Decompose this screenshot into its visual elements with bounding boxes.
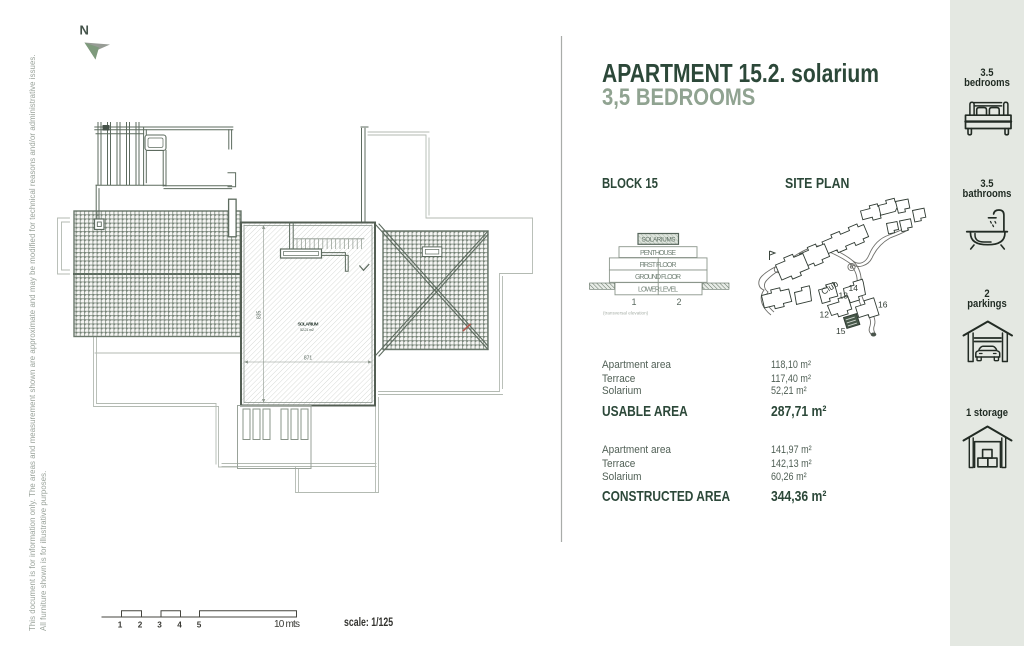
svg-text:4: 4 (177, 621, 182, 630)
svg-text:12: 12 (820, 310, 830, 320)
svg-text:N: N (80, 23, 89, 38)
svg-text:10 mts: 10 mts (274, 619, 300, 630)
svg-text:14: 14 (849, 283, 859, 293)
svg-text:SOLARIUMS: SOLARIUMS (642, 237, 676, 244)
svg-text:GROUND FLOOR: GROUND FLOOR (635, 274, 681, 281)
svg-text:2: 2 (138, 621, 143, 630)
svg-text:3: 3 (157, 621, 162, 630)
svg-text:(transversal elevation): (transversal elevation) (603, 311, 649, 316)
svg-text:13: 13 (839, 291, 849, 301)
svg-text:2: 2 (676, 297, 681, 307)
svg-text:16: 16 (878, 300, 888, 310)
svg-text:1: 1 (631, 297, 636, 307)
svg-text:835: 835 (257, 310, 263, 319)
svg-text:15: 15 (836, 326, 846, 336)
svg-text:1: 1 (118, 621, 123, 630)
svg-text:5: 5 (197, 621, 202, 630)
svg-text:PENTHOUSE: PENTHOUSE (640, 250, 676, 257)
svg-text:871: 871 (304, 356, 313, 362)
svg-text:LOWER LEVEL: LOWER LEVEL (638, 287, 678, 294)
svg-text:52.21 m2: 52.21 m2 (300, 327, 315, 332)
svg-text:FIRST FLOOR: FIRST FLOOR (640, 262, 677, 269)
